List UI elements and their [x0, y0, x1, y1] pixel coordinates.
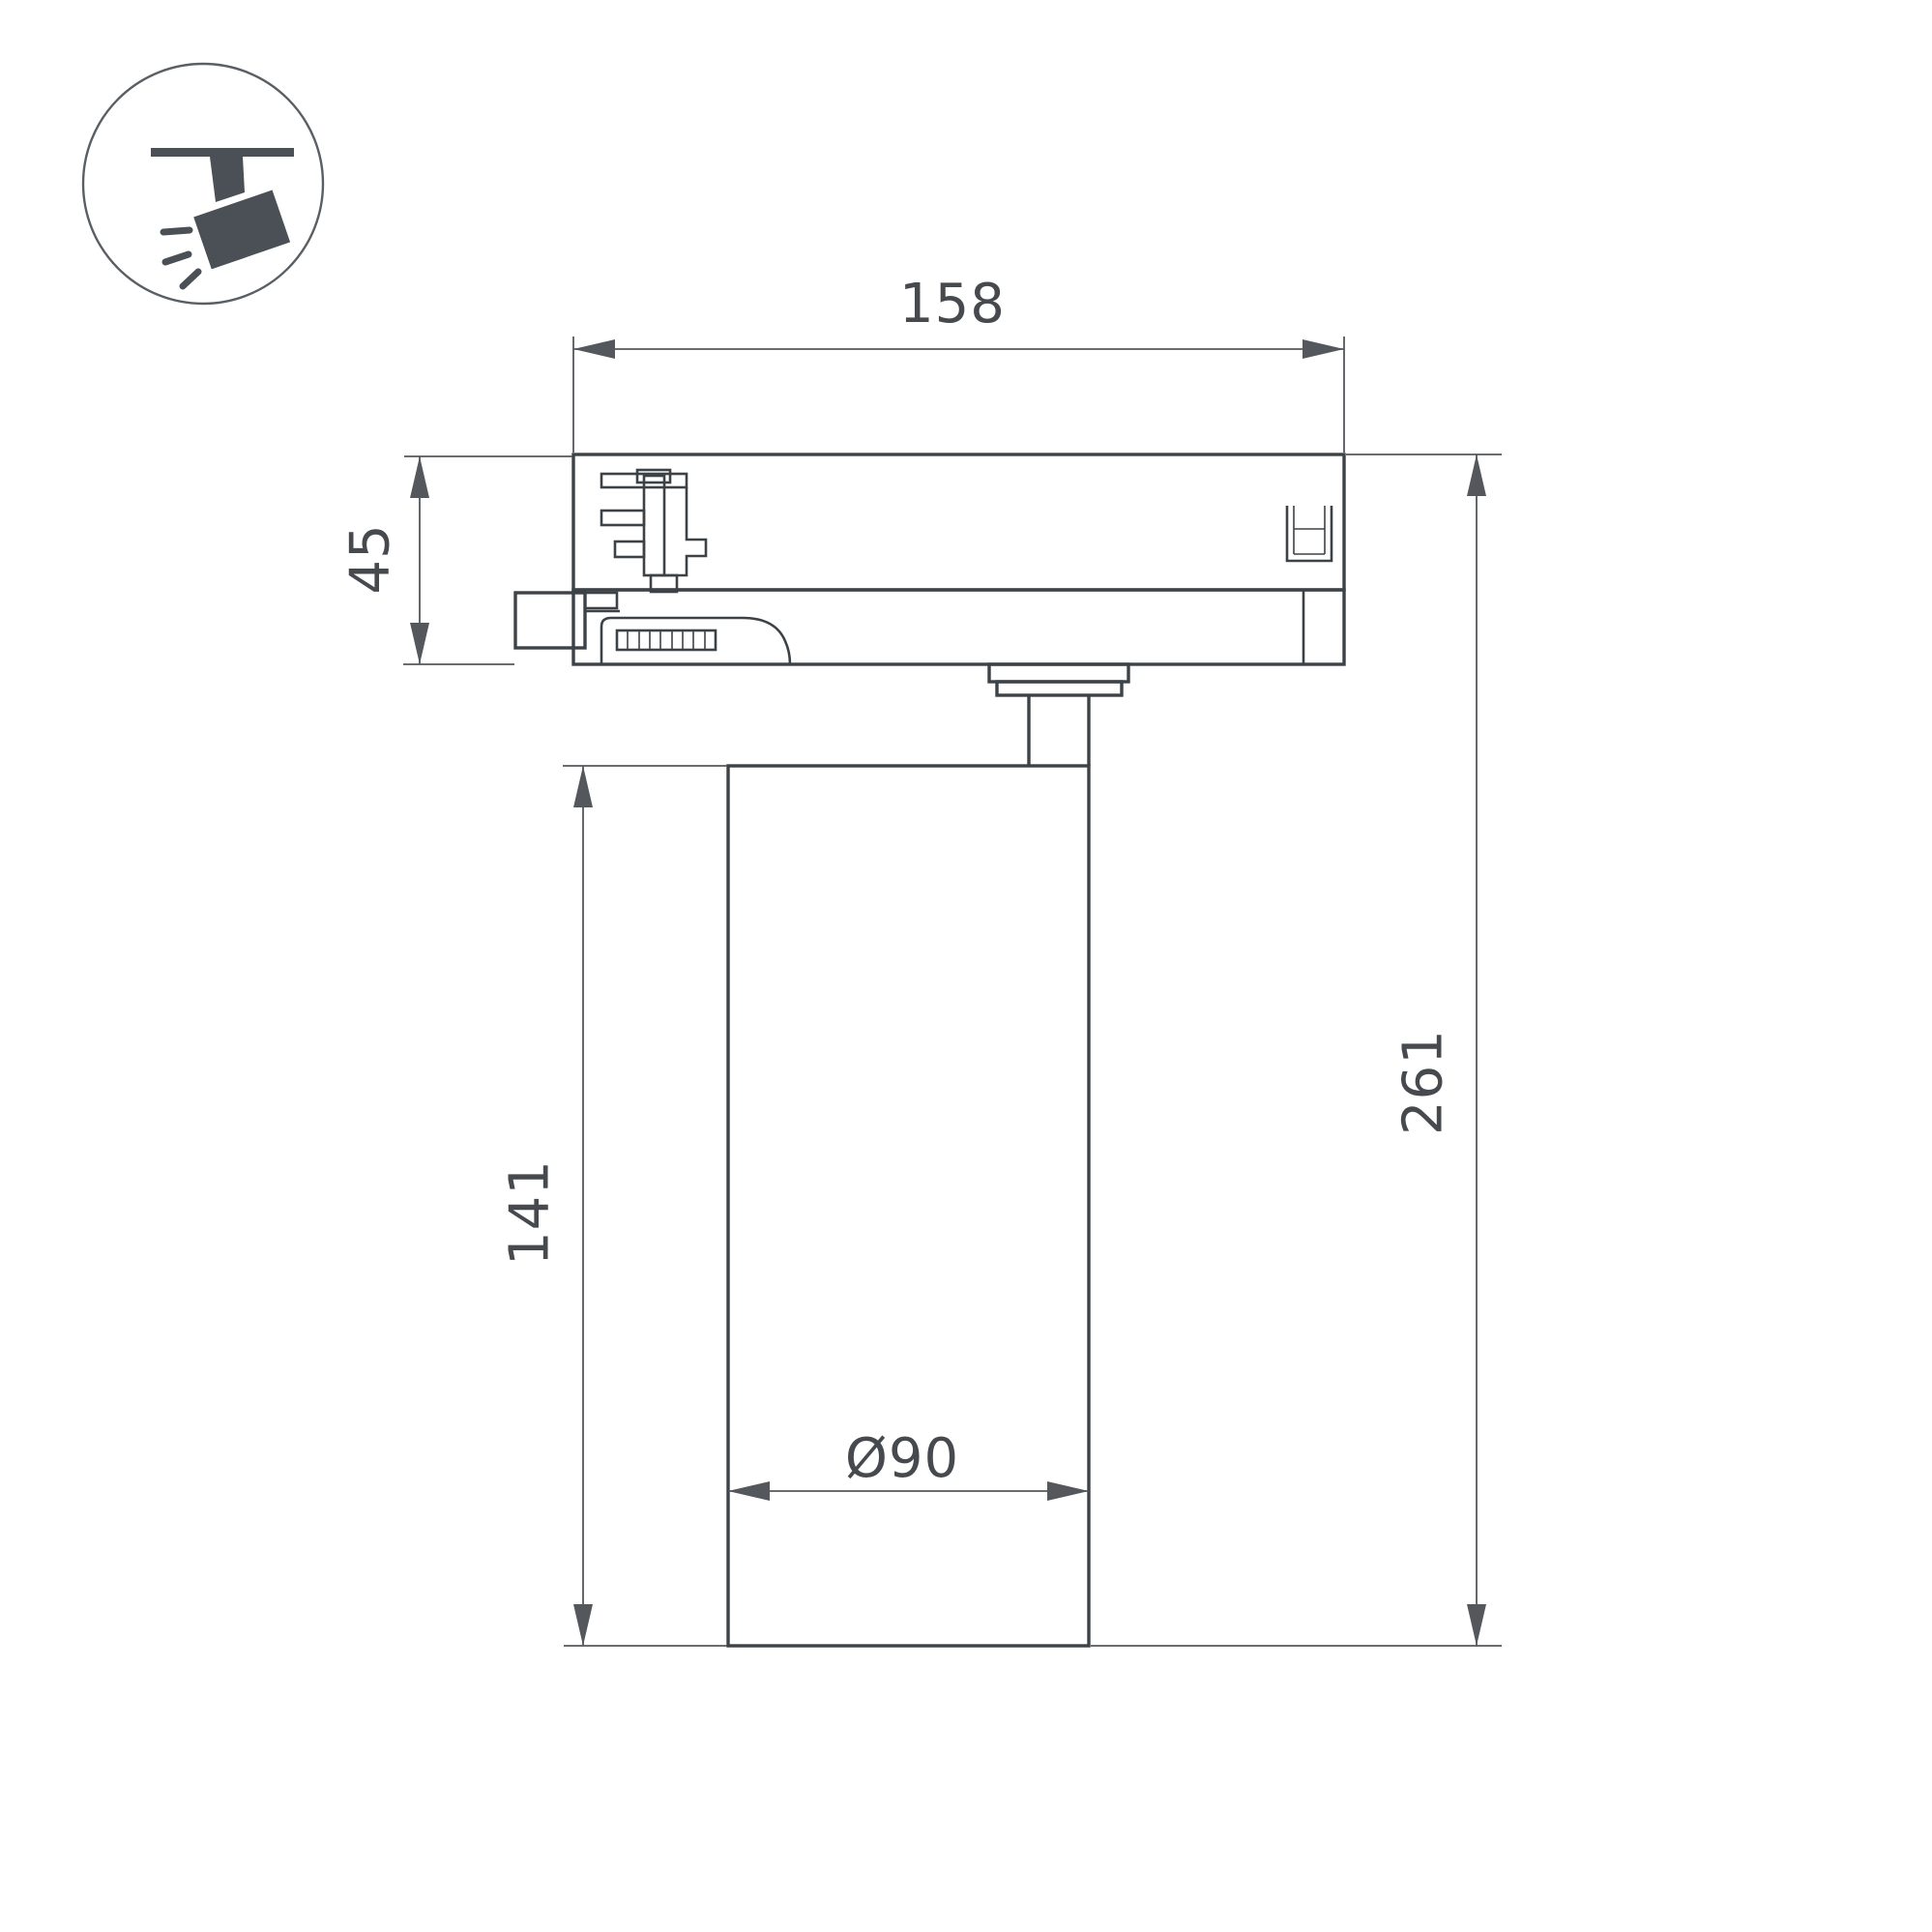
- flange-step-1: [989, 664, 1128, 682]
- dimension-adapter-height: 45: [339, 456, 573, 664]
- icon-circle: [83, 64, 323, 304]
- flange-step-2: [997, 682, 1122, 695]
- track-spotlight-icon: [83, 64, 323, 304]
- latch-notch: [585, 593, 617, 608]
- arrowhead-up: [410, 456, 429, 498]
- dial-ribs: [628, 630, 705, 650]
- lamp-cylinder-body: [728, 766, 1089, 1646]
- arrowhead-down: [1467, 1604, 1486, 1646]
- arrowhead-up: [573, 766, 593, 807]
- adapter-contact-block: [601, 470, 706, 592]
- dimension-track-width: 158: [573, 273, 1344, 453]
- arrowhead-right: [1047, 1481, 1089, 1501]
- dimension-label: 141: [499, 1159, 562, 1266]
- dimension-label: Ø90: [845, 1427, 959, 1490]
- adapter-lower-band: [573, 590, 1344, 664]
- dimension-body-diameter: Ø90: [728, 1427, 1089, 1501]
- adapter-ground-clip: [1287, 506, 1332, 561]
- contact-pin-middle: [601, 511, 644, 525]
- technical-drawing-canvas: 158 45 141 261 Ø90: [0, 0, 1932, 1932]
- icon-light-ray: [163, 230, 190, 232]
- contact-body-edge: [664, 487, 706, 575]
- arrowhead-up: [1467, 454, 1486, 496]
- adapter-latch-and-dial: [515, 593, 790, 664]
- dimension-label: 158: [899, 273, 1006, 336]
- dial-housing: [601, 618, 790, 664]
- dial-ribbed-window: [617, 630, 716, 650]
- contact-pin-lower: [615, 542, 644, 557]
- swivel-joint: [989, 664, 1128, 766]
- track-adapter-outline: [573, 454, 1344, 664]
- dimension-label: 45: [339, 523, 402, 594]
- icon-track-bar: [151, 148, 294, 157]
- adapter-upper-body: [573, 454, 1344, 590]
- dimension-total-height: 261: [1091, 454, 1502, 1646]
- arrowhead-left: [573, 339, 615, 359]
- dimension-body-height: 141: [499, 766, 728, 1646]
- contact-shaft: [644, 476, 664, 575]
- arrowhead-left: [728, 1481, 770, 1501]
- arrowhead-down: [410, 623, 429, 664]
- arrowhead-right: [1303, 339, 1344, 359]
- arrowhead-down: [573, 1604, 593, 1646]
- drawing-page: 158 45 141 261 Ø90: [0, 0, 1932, 1932]
- dimension-label: 261: [1392, 1029, 1455, 1135]
